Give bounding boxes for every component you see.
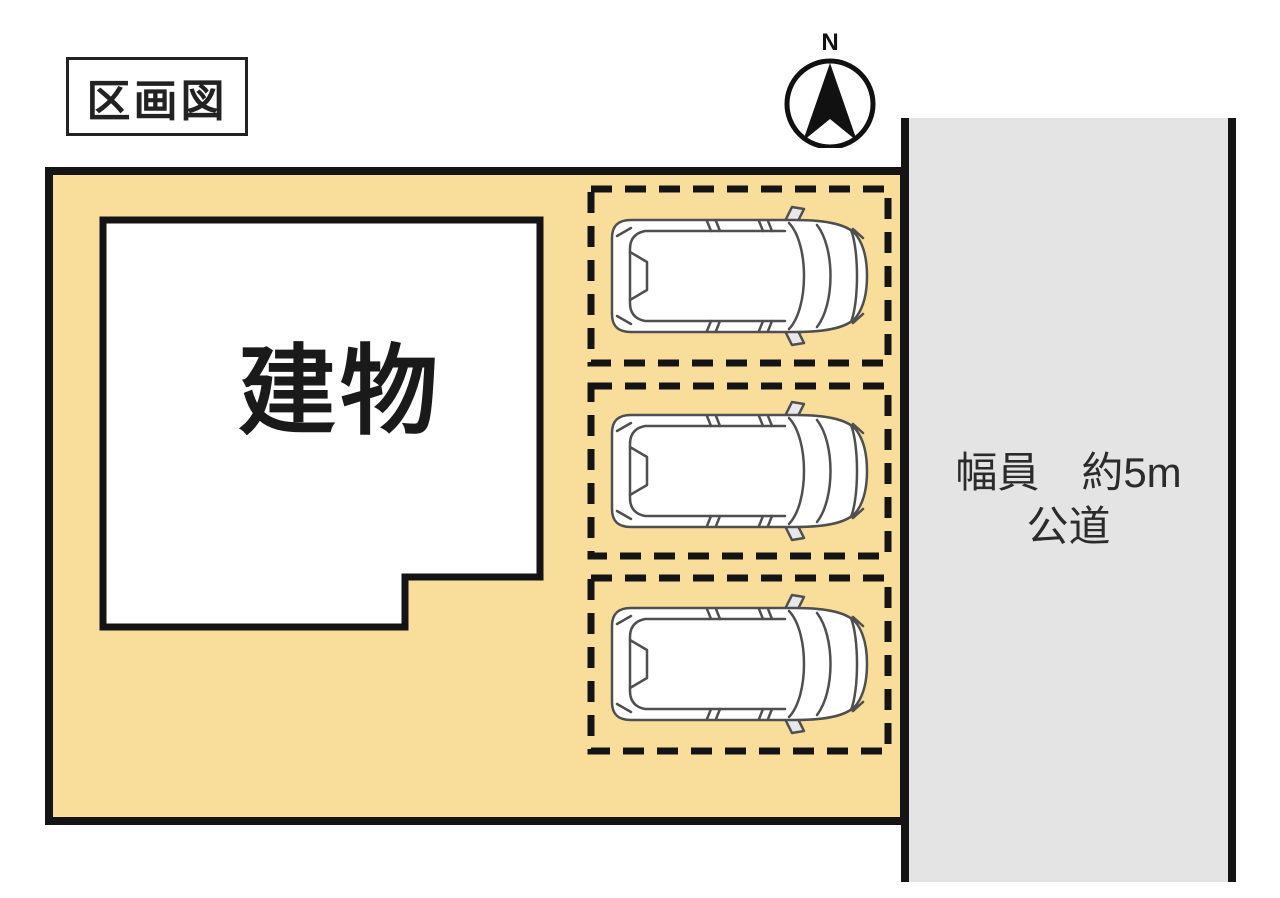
- car-icon: [612, 402, 867, 540]
- north-arrow-icon: [803, 63, 857, 141]
- building-label: 建物: [205, 338, 475, 446]
- compass-n-label: N: [821, 29, 838, 56]
- diagram-title-box: 区画図: [66, 57, 248, 136]
- plot-diagram-canvas: 区画図 幅員 約5m 公道 N: [0, 0, 1280, 898]
- north-compass: N: [775, 22, 885, 148]
- car-icon: [612, 595, 867, 733]
- diagram-title: 区画図: [87, 65, 228, 129]
- car-icon: [612, 207, 867, 345]
